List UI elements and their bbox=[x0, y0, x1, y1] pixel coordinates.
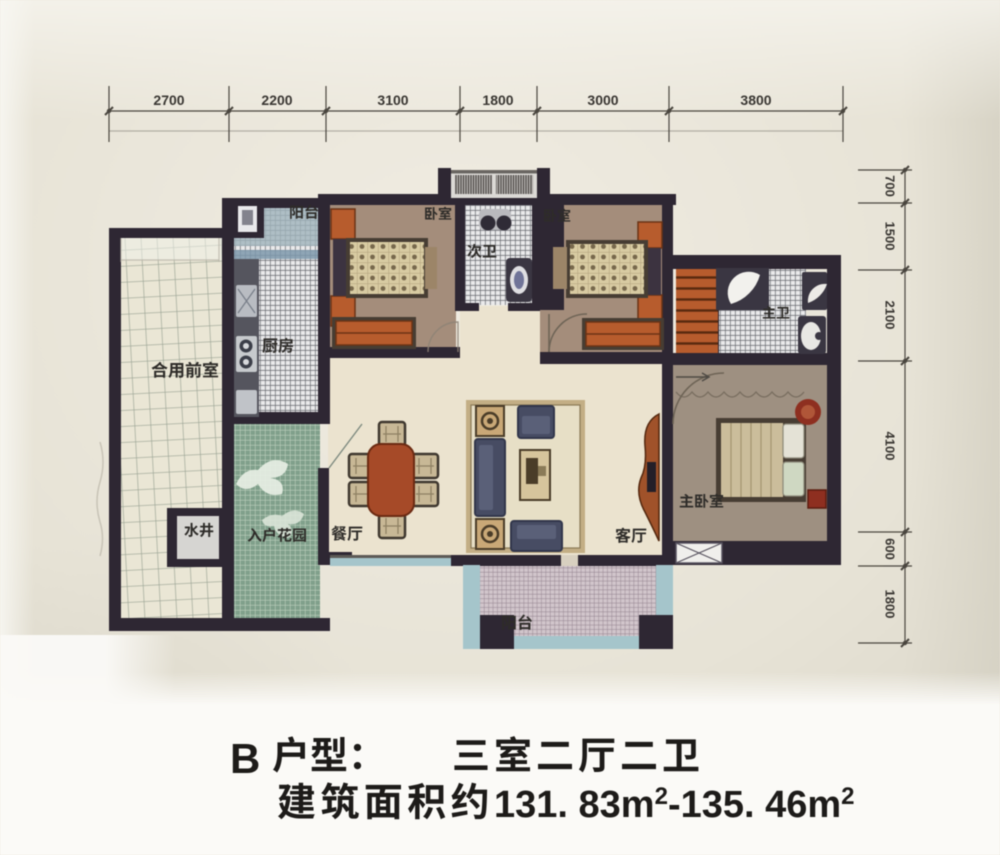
svg-text:1800: 1800 bbox=[883, 590, 898, 619]
svg-text:B: B bbox=[230, 735, 260, 782]
svg-text:700: 700 bbox=[883, 175, 898, 197]
svg-text:3000: 3000 bbox=[587, 92, 618, 108]
svg-text:131. 83m2-135. 46m2: 131. 83m2-135. 46m2 bbox=[494, 783, 855, 826]
svg-text:1500: 1500 bbox=[883, 222, 898, 251]
svg-text:2100: 2100 bbox=[883, 301, 898, 330]
svg-text:2700: 2700 bbox=[153, 92, 184, 108]
svg-text:3800: 3800 bbox=[740, 92, 771, 108]
svg-text:2200: 2200 bbox=[261, 92, 292, 108]
svg-text:1800: 1800 bbox=[482, 92, 513, 108]
svg-text:4100: 4100 bbox=[883, 432, 898, 461]
svg-text:600: 600 bbox=[883, 538, 898, 560]
svg-text:3100: 3100 bbox=[377, 92, 408, 108]
